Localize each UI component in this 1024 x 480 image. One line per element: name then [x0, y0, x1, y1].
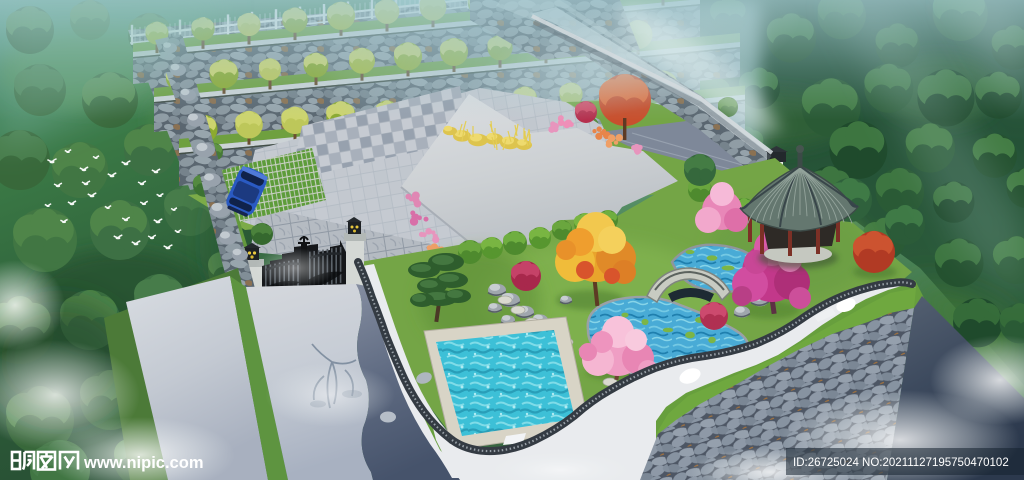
- svg-text:www.nipic.com: www.nipic.com: [83, 454, 204, 472]
- svg-text:ID:26725024 NO:202111271957504: ID:26725024 NO:20211127195750470102: [793, 457, 1009, 469]
